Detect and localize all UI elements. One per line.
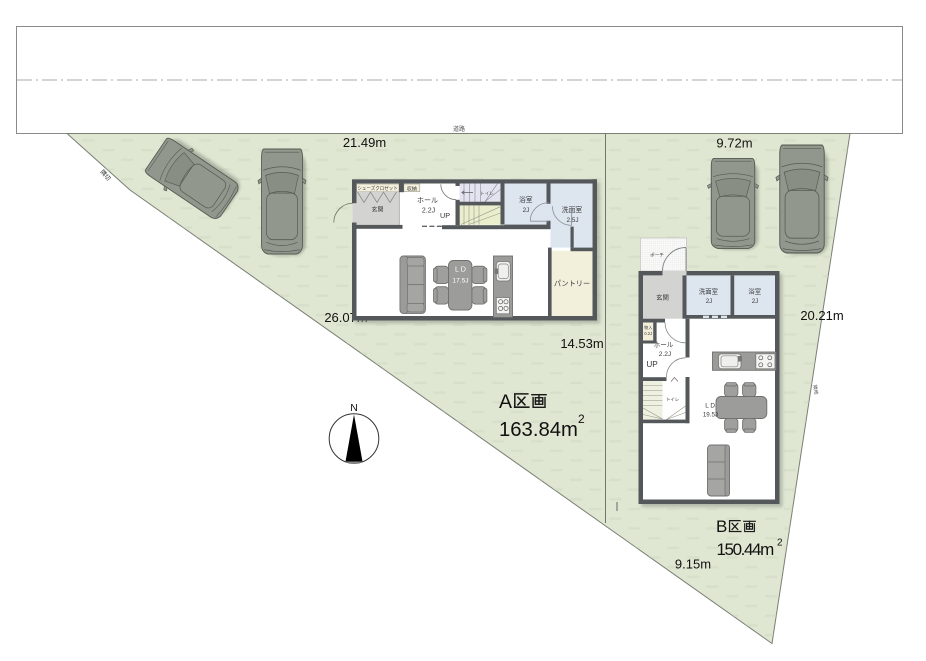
svg-text:9.15m: 9.15m [675, 557, 711, 572]
svg-text:トイレ: トイレ [480, 191, 494, 196]
svg-text:20.21m: 20.21m [800, 308, 843, 323]
svg-text:19.5J: 19.5J [703, 412, 718, 419]
svg-text:9.72m: 9.72m [716, 136, 752, 151]
svg-text:163.84m: 163.84m [499, 419, 578, 441]
svg-text:2.2J: 2.2J [422, 208, 435, 215]
svg-text:洗面室: 洗面室 [699, 287, 719, 296]
svg-text:17.5J: 17.5J [452, 278, 468, 285]
svg-text:2.5J: 2.5J [566, 217, 578, 224]
svg-text:2J: 2J [752, 298, 759, 305]
svg-text:0.2J: 0.2J [644, 331, 652, 336]
svg-text:収納: 収納 [407, 184, 417, 192]
svg-text:2J: 2J [706, 298, 713, 305]
svg-text:玄関: 玄関 [656, 293, 669, 302]
svg-text:ポーチ: ポーチ [650, 252, 664, 258]
svg-text:道路: 道路 [453, 125, 465, 133]
svg-text:浴室: 浴室 [748, 287, 761, 296]
svg-text:ホール: ホール [654, 341, 674, 349]
svg-text:14.53m: 14.53m [560, 336, 603, 351]
svg-text:UP: UP [646, 360, 658, 369]
svg-text:浴室: 浴室 [519, 195, 533, 204]
svg-text:2J: 2J [523, 207, 530, 214]
svg-text:2: 2 [578, 412, 585, 426]
svg-text:洗面室: 洗面室 [562, 205, 583, 214]
svg-text:玄関: 玄関 [371, 206, 383, 214]
svg-text:シューズクロゼット: シューズクロゼット [357, 185, 398, 192]
svg-text:2: 2 [777, 538, 783, 549]
svg-text:L D: L D [705, 403, 715, 410]
svg-text:物入: 物入 [644, 324, 653, 331]
svg-text:ホール: ホール [417, 197, 438, 205]
svg-text:N: N [350, 402, 358, 414]
svg-text:2.2J: 2.2J [659, 351, 671, 358]
svg-text:150.44m: 150.44m [717, 540, 775, 559]
svg-text:A: A [499, 391, 512, 413]
svg-text:21.49m: 21.49m [343, 135, 386, 150]
svg-text:L D: L D [455, 265, 466, 274]
svg-text:B: B [716, 517, 727, 536]
svg-text:UP: UP [440, 211, 450, 220]
svg-text:トイレ: トイレ [666, 397, 679, 402]
svg-text:パントリー: パントリー [554, 279, 590, 288]
